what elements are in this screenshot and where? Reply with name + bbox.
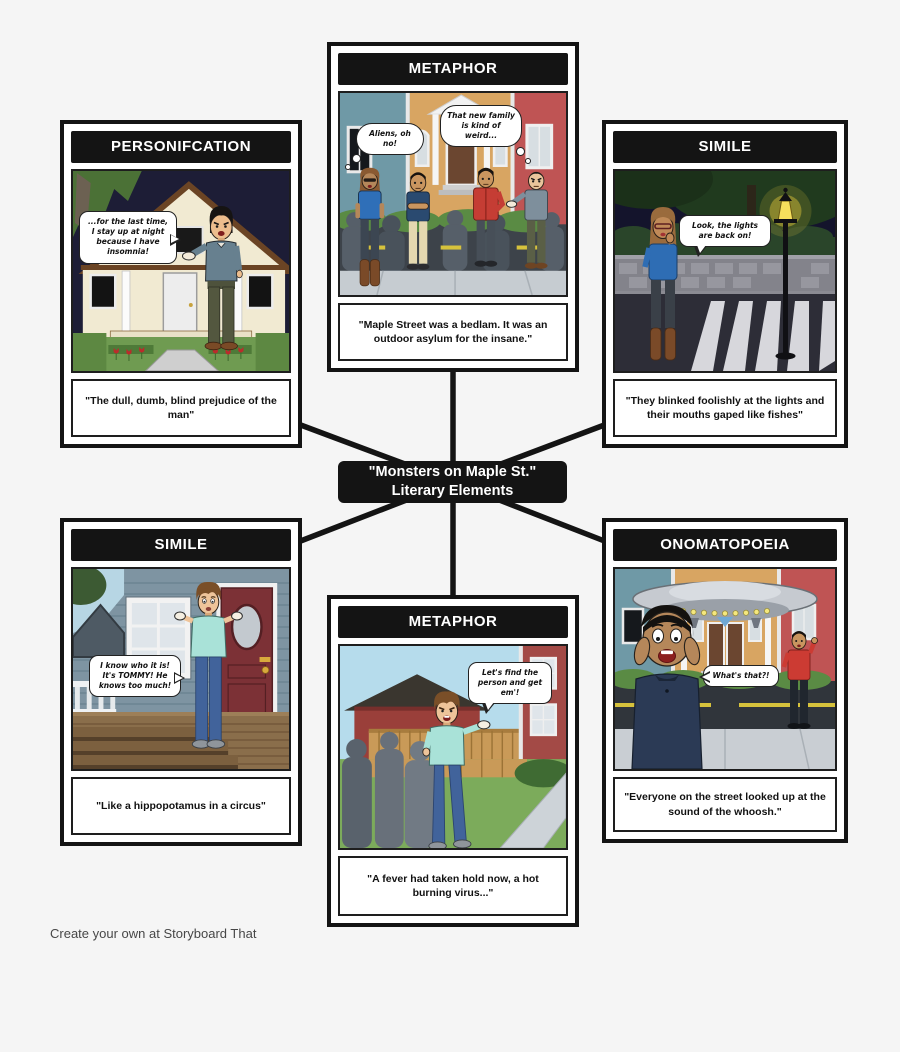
red-door xyxy=(216,583,277,733)
crowd-silhouettes xyxy=(342,732,435,848)
scene-metaphor-top-illustration: Aliens, oh no! That new family is kind o… xyxy=(338,91,568,297)
thought-bubble-right: That new family is kind of weird... xyxy=(440,105,522,147)
panel-header: SIMILE xyxy=(71,529,291,561)
panel-header: PERSONIFCATION xyxy=(71,131,291,163)
panel-header: METAPHOR xyxy=(338,53,568,85)
center-title-node: "Monsters on Maple St." Literary Element… xyxy=(338,461,567,503)
speech-bubble: I know who it is! It's TOMMY! He knows t… xyxy=(89,655,181,697)
panel-header: ONOMATOPOEIA xyxy=(613,529,837,561)
title-line-1: "Monsters on Maple St." xyxy=(369,463,537,482)
speech-bubble: What's that?! xyxy=(703,665,779,687)
panel-caption: "Like a hippopotamus in a circus" xyxy=(71,777,291,835)
panel-header: SIMILE xyxy=(613,131,837,163)
panel-caption: "The dull, dumb, blind prejudice of the … xyxy=(71,379,291,437)
scene-simile-top-illustration: Look, the lights are back on! xyxy=(613,169,837,373)
speech-bubble: Look, the lights are back on! xyxy=(679,215,771,247)
panel-simile-bottom: SIMILE xyxy=(60,518,302,846)
thought-bubble-left: Aliens, oh no! xyxy=(356,123,424,155)
scene-onomatopoeia-illustration: What's that?! xyxy=(613,567,837,771)
storyboard-spider-map: PERSONIFCATION xyxy=(0,0,900,1052)
panel-personification: PERSONIFCATION xyxy=(60,120,302,448)
panel-header: METAPHOR xyxy=(338,606,568,638)
panel-metaphor-top: METAPHOR xyxy=(327,42,579,372)
scene-personification-illustration: ...for the last time, I stay up at night… xyxy=(71,169,291,373)
speech-bubble: ...for the last time, I stay up at night… xyxy=(79,211,177,264)
panel-simile-top: SIMILE xyxy=(602,120,848,448)
scene-metaphor-bottom-illustration: Let's find the person and get em'! xyxy=(338,644,568,850)
panel-metaphor-bottom: METAPHOR xyxy=(327,595,579,927)
panel-caption: "They blinked foolishly at the lights an… xyxy=(613,379,837,437)
speech-bubble: Let's find the person and get em'! xyxy=(468,662,552,704)
panel-caption: "Maple Street was a bedlam. It was an ou… xyxy=(338,303,568,361)
storyboard-that-credit: Create your own at Storyboard That xyxy=(50,926,256,941)
panel-caption: "A fever had taken hold now, a hot burni… xyxy=(338,856,568,916)
panel-onomatopoeia: ONOMATOPOEIA xyxy=(602,518,848,843)
panel-caption: "Everyone on the street looked up at the… xyxy=(613,777,837,832)
scene-simile-bottom-illustration: I know who it is! It's TOMMY! He knows t… xyxy=(71,567,291,771)
title-line-2: Literary Elements xyxy=(392,482,514,501)
